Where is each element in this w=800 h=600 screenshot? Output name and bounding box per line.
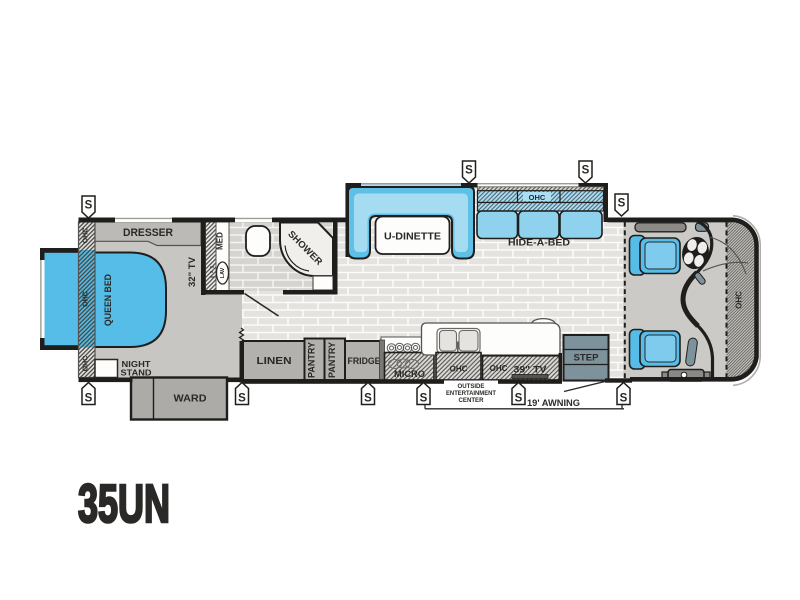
- svg-text:WARD: WARD: [174, 393, 207, 405]
- svg-text:CENTER: CENTER: [459, 397, 485, 404]
- svg-text:S: S: [238, 393, 246, 405]
- svg-text:S: S: [85, 200, 93, 212]
- svg-text:LAV: LAV: [220, 267, 226, 278]
- svg-text:39" TV: 39" TV: [514, 365, 547, 375]
- svg-text:S: S: [618, 198, 626, 210]
- svg-text:OHC: OHC: [529, 193, 546, 202]
- svg-text:19' AWNING: 19' AWNING: [527, 398, 580, 409]
- svg-text:DRESSER: DRESSER: [123, 227, 173, 239]
- svg-text:S: S: [515, 393, 523, 405]
- svg-text:OHC: OHC: [735, 291, 744, 309]
- svg-text:MICRO: MICRO: [394, 369, 425, 380]
- svg-text:OHC: OHC: [450, 365, 468, 374]
- svg-text:OHC: OHC: [83, 291, 90, 307]
- svg-text:S: S: [620, 393, 628, 405]
- svg-text:S: S: [85, 393, 93, 405]
- svg-text:PANTRY: PANTRY: [307, 342, 317, 378]
- svg-text:HIDE-A-BED: HIDE-A-BED: [508, 238, 570, 248]
- svg-text:PANTRY: PANTRY: [327, 342, 337, 378]
- svg-text:OHC: OHC: [490, 364, 508, 373]
- svg-text:ENTERTAINMENT: ENTERTAINMENT: [446, 390, 496, 397]
- svg-text:OHC: OHC: [83, 228, 90, 244]
- svg-text:LINEN: LINEN: [257, 355, 292, 367]
- svg-text:QUEEN BED: QUEEN BED: [103, 274, 113, 326]
- svg-text:S: S: [582, 165, 590, 177]
- svg-text:STAND: STAND: [121, 368, 152, 378]
- svg-text:S: S: [465, 165, 473, 177]
- svg-text:35UN: 35UN: [78, 474, 170, 534]
- svg-text:OHC: OHC: [83, 356, 90, 372]
- svg-text:S: S: [420, 393, 428, 405]
- svg-text:MED: MED: [216, 232, 225, 250]
- svg-text:OUTSIDE: OUTSIDE: [458, 383, 485, 390]
- svg-text:S: S: [364, 393, 372, 405]
- svg-text:STEP: STEP: [574, 353, 599, 363]
- svg-text:32" TV: 32" TV: [187, 257, 197, 287]
- svg-text:U-DINETTE: U-DINETTE: [384, 231, 441, 243]
- svg-text:FRIDGE: FRIDGE: [348, 356, 381, 366]
